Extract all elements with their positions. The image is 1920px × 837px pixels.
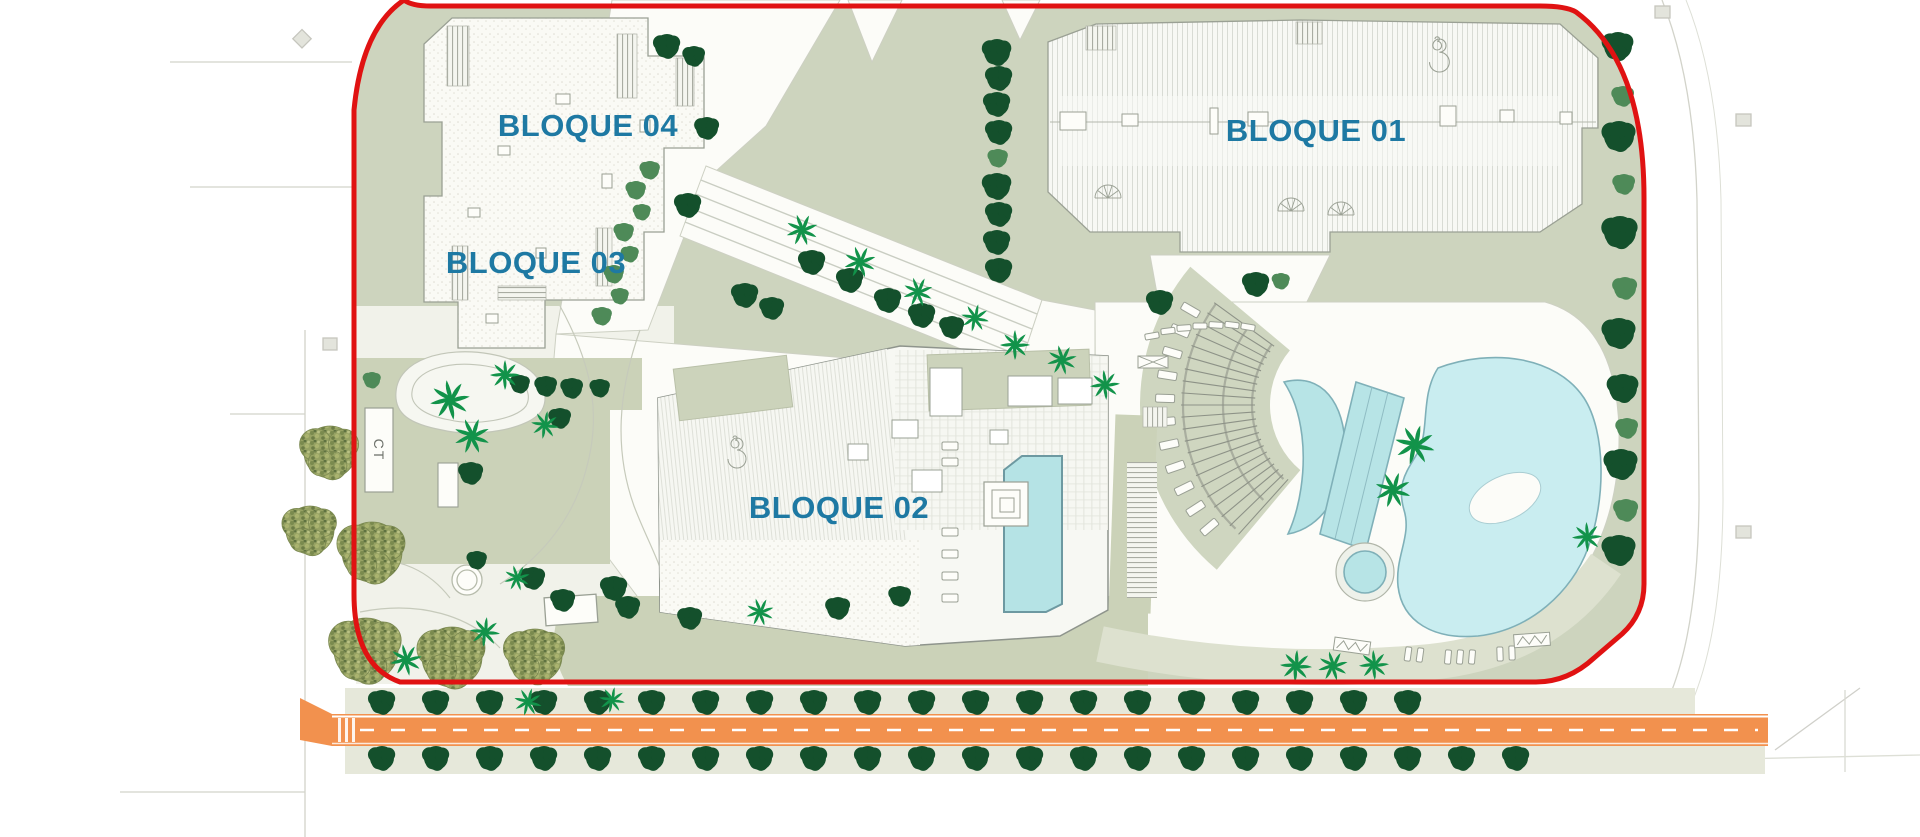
sun-lounger-icon bbox=[942, 528, 958, 536]
label-ct-hut: CT bbox=[371, 439, 387, 462]
sun-lounger-icon bbox=[1225, 321, 1240, 329]
sun-lounger-icon bbox=[942, 594, 958, 602]
sun-lounger-icon bbox=[942, 458, 958, 466]
label-bloque-04: BLOQUE 04 bbox=[498, 108, 678, 144]
sun-lounger-icon bbox=[1404, 647, 1412, 662]
pergola-marker-icon bbox=[1514, 632, 1551, 647]
site-plan-drawing bbox=[0, 0, 1920, 837]
sun-lounger-icon bbox=[1155, 394, 1174, 403]
label-bloque-03: BLOQUE 03 bbox=[446, 245, 626, 281]
sun-lounger-icon bbox=[1456, 650, 1463, 664]
garden-hut bbox=[438, 463, 458, 507]
sun-lounger-icon bbox=[942, 572, 958, 580]
sun-lounger-icon bbox=[1161, 327, 1176, 335]
sun-lounger-icon bbox=[1209, 322, 1223, 329]
sun-lounger-icon bbox=[942, 550, 958, 558]
sun-lounger-icon bbox=[1416, 648, 1424, 663]
sun-lounger-icon bbox=[1497, 647, 1503, 661]
label-bloque-01: BLOQUE 01 bbox=[1226, 113, 1406, 149]
sun-lounger-icon bbox=[1177, 325, 1191, 332]
label-bloque-02: BLOQUE 02 bbox=[749, 490, 929, 526]
spa-pool bbox=[1344, 551, 1386, 593]
sun-lounger-icon bbox=[942, 442, 958, 450]
sun-lounger-icon bbox=[1468, 650, 1475, 664]
sun-lounger-icon bbox=[1193, 323, 1207, 329]
sun-lounger-icon bbox=[1444, 650, 1451, 664]
site-plan-page: BLOQUE 04 BLOQUE 03 BLOQUE 01 BLOQUE 02 … bbox=[0, 0, 1920, 837]
stepped-path bbox=[1127, 462, 1157, 598]
